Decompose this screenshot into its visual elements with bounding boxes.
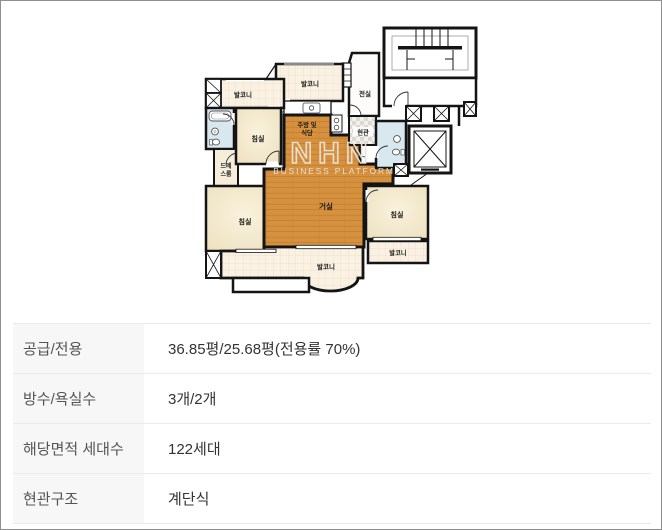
kitchen-counter xyxy=(284,101,331,115)
spec-value-entrance-structure: 계단식 xyxy=(144,474,651,523)
room-label-anteroom: 전실 xyxy=(359,89,371,98)
bathroom-right xyxy=(374,121,407,168)
spec-table: 공급/전용 36.85평/25.68평(전용률 70%) 방수/욕실수 3개/2… xyxy=(13,323,651,524)
room-label-kitchen-line1: 주방 및 xyxy=(297,120,316,129)
room-label-entrance: 현관 xyxy=(357,128,369,137)
room-anteroom xyxy=(342,53,379,119)
room-label-kitchen-line2: 식당 xyxy=(301,128,313,137)
room-label-dress-line1: 드레 xyxy=(220,162,232,170)
table-row: 해당면적 세대수 122세대 xyxy=(13,423,651,473)
room-label-balcony-top: 발코니 xyxy=(301,79,319,88)
table-row: 방수/욕실수 3개/2개 xyxy=(13,373,651,423)
floorplan-image: NHN BUSINESS PLATFORM 발코니 발코니 전실 침실 주방 및… xyxy=(176,1,486,301)
staircase xyxy=(384,28,476,78)
room-label-balcony-bottom: 발코니 xyxy=(317,262,335,271)
room-label-balcony-top-left: 발코니 xyxy=(234,90,252,99)
room-label-bedroom-bottom-left: 침실 xyxy=(239,217,252,226)
room-label-bedroom-top-left: 침실 xyxy=(252,134,265,143)
property-detail-panel: NHN BUSINESS PLATFORM 발코니 발코니 전실 침실 주방 및… xyxy=(0,0,662,530)
spec-label-supply-exclusive: 공급/전용 xyxy=(13,324,144,373)
spec-label-entrance-structure: 현관구조 xyxy=(13,474,144,523)
stair-hall xyxy=(384,78,476,126)
utility-icon xyxy=(331,115,342,132)
room-label-living: 거실 xyxy=(319,201,333,211)
room-label-bedroom-right: 침실 xyxy=(391,210,404,219)
spec-label-households: 해당면적 세대수 xyxy=(13,424,144,473)
spec-value-households: 122세대 xyxy=(144,424,651,473)
spec-label-rooms-baths: 방수/욕실수 xyxy=(13,374,144,423)
room-label-balcony-bottom-right: 발코니 xyxy=(389,248,407,257)
balcony-bottom xyxy=(206,247,363,292)
bathroom-left xyxy=(206,108,237,149)
room-label-dress-line2: 스룸 xyxy=(220,170,232,178)
table-row: 현관구조 계단식 xyxy=(13,473,651,524)
spec-value-supply-exclusive: 36.85평/25.68평(전용률 70%) xyxy=(144,324,651,373)
table-row: 공급/전용 36.85평/25.68평(전용률 70%) xyxy=(13,323,651,373)
watermark-text: BUSINESS PLATFORM xyxy=(273,166,395,176)
spec-value-rooms-baths: 3개/2개 xyxy=(144,374,651,423)
